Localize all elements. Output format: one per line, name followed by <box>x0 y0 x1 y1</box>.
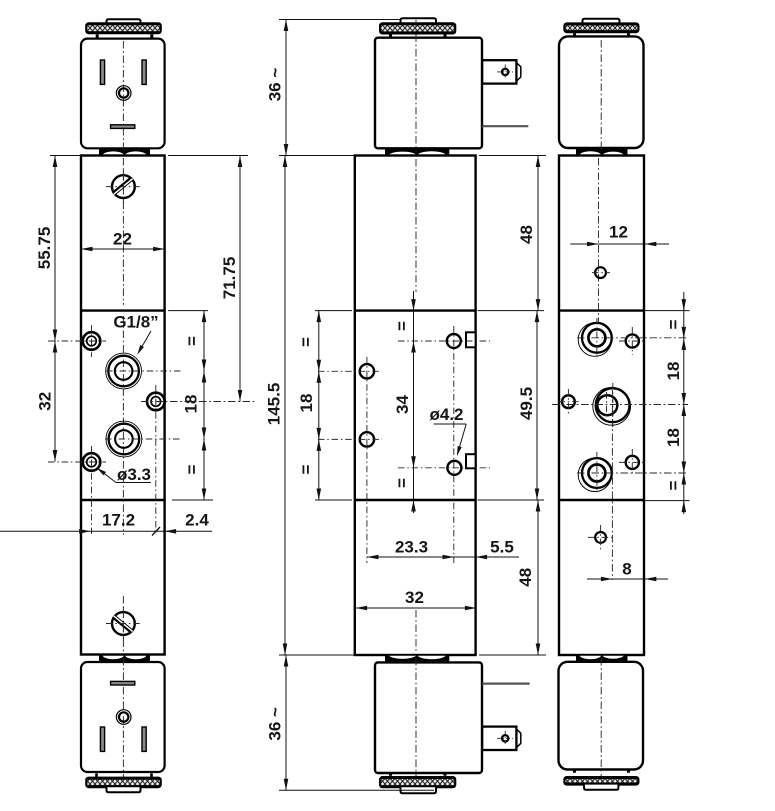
svg-text:2.4: 2.4 <box>185 511 209 530</box>
svg-text:G1/8”: G1/8” <box>113 313 158 332</box>
svg-text:ø3.3: ø3.3 <box>117 465 151 484</box>
svg-text:36 ~: 36 ~ <box>266 707 285 741</box>
svg-text:32: 32 <box>405 588 424 607</box>
svg-text:=: = <box>297 337 316 347</box>
svg-text:=: = <box>393 478 412 488</box>
svg-text:18: 18 <box>664 428 683 447</box>
svg-text:18: 18 <box>297 394 316 413</box>
svg-text:55.75: 55.75 <box>35 227 54 270</box>
svg-text:23.3: 23.3 <box>395 538 428 557</box>
svg-text:=: = <box>183 336 202 346</box>
svg-text:=: = <box>183 464 202 474</box>
svg-text:48: 48 <box>517 225 536 244</box>
svg-text:8: 8 <box>622 560 631 579</box>
svg-text:145.5: 145.5 <box>264 383 283 426</box>
svg-text:12: 12 <box>609 223 628 242</box>
svg-text:48: 48 <box>516 568 535 587</box>
svg-text:71.75: 71.75 <box>220 257 239 300</box>
svg-text:=: = <box>664 319 683 329</box>
svg-text:22: 22 <box>113 230 132 249</box>
svg-text:32: 32 <box>35 392 54 411</box>
svg-text:49.5: 49.5 <box>517 387 536 420</box>
svg-text:36 ~: 36 ~ <box>265 68 284 102</box>
svg-text:18: 18 <box>664 362 683 381</box>
svg-text:17.2: 17.2 <box>102 511 135 530</box>
svg-text:=: = <box>297 464 316 474</box>
svg-text:5.5: 5.5 <box>490 538 514 557</box>
svg-text:=: = <box>664 480 683 490</box>
svg-text:=: = <box>393 321 412 331</box>
svg-text:18: 18 <box>182 395 201 414</box>
svg-text:34: 34 <box>393 395 412 414</box>
svg-text:ø4.2: ø4.2 <box>429 405 463 424</box>
